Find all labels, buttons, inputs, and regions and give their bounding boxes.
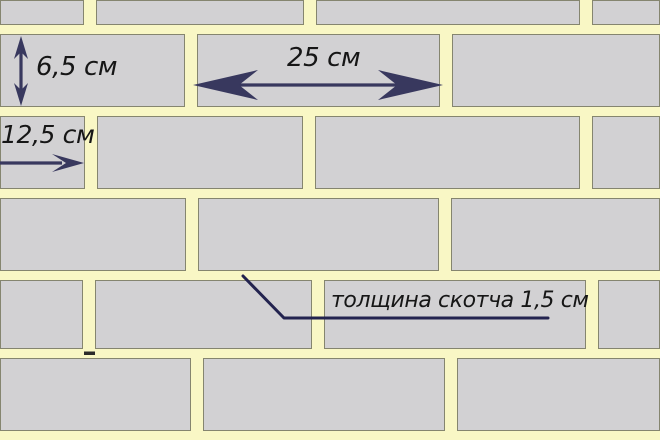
brick <box>592 0 660 25</box>
tape-thickness-label: толщина скотча 1,5 см <box>331 288 589 313</box>
brick <box>97 116 303 189</box>
brick <box>203 358 445 431</box>
half-brick-label: 12,5 см <box>1 121 94 150</box>
brick <box>95 280 312 349</box>
brick-length-label: 25 см <box>287 44 360 74</box>
brick <box>457 358 660 431</box>
brick <box>96 0 304 25</box>
brick <box>315 116 580 189</box>
brick <box>598 280 660 349</box>
brick <box>0 358 191 431</box>
brick <box>592 116 660 189</box>
brick-height-label: 6,5 см <box>36 53 117 83</box>
brick <box>0 198 186 271</box>
brick <box>198 198 439 271</box>
brick <box>0 0 84 25</box>
brick <box>316 0 580 25</box>
brick <box>0 280 83 349</box>
brick <box>452 34 660 107</box>
brick-wall-diagram: 6,5 см 25 см 12,5 см толщина скотча 1,5 … <box>0 0 660 440</box>
brick <box>451 198 660 271</box>
joint-mark <box>84 352 95 356</box>
